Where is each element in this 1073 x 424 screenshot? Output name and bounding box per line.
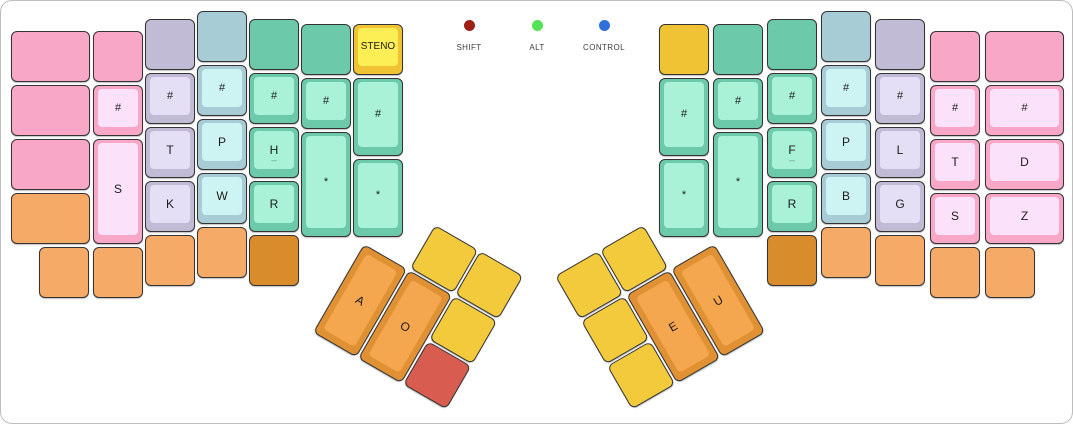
- key-label: #: [681, 109, 687, 120]
- key-l[interactable]: L: [875, 127, 925, 178]
- key-label: #: [952, 103, 958, 114]
- shift-indicator: SHIFT: [434, 18, 504, 52]
- key-label: STENO: [361, 42, 395, 52]
- key-label: S: [114, 183, 122, 195]
- key-label: *: [736, 177, 740, 188]
- steno-keyboard-layout: #S#TK#PW#H_R#*STENO#*#*#*#F_R#PB#LG#TS#D…: [0, 0, 1073, 424]
- key-blank[interactable]: [930, 31, 980, 82]
- key-label: L: [897, 144, 904, 156]
- key-k[interactable]: K: [145, 181, 195, 232]
- key-blank[interactable]: [767, 235, 817, 286]
- key-d[interactable]: D: [985, 139, 1064, 190]
- keycap-face: S: [98, 143, 138, 235]
- key-blank[interactable]: [39, 247, 89, 298]
- keycap-face: #: [718, 82, 758, 120]
- keycap-face: Z: [990, 197, 1059, 235]
- key-p[interactable]: P: [821, 119, 871, 170]
- key-label: #: [789, 91, 795, 102]
- key-label: W: [216, 190, 227, 202]
- key-label: T: [951, 156, 958, 168]
- keycap-face: R: [772, 185, 812, 223]
- keycap-face: #: [254, 77, 294, 115]
- key-hash[interactable]: #: [93, 85, 143, 136]
- key-hash[interactable]: #: [767, 73, 817, 124]
- key-label: R: [270, 198, 279, 210]
- keycap-face: #: [990, 89, 1059, 127]
- key-label: B: [842, 190, 850, 202]
- key-label: P: [218, 136, 226, 148]
- key-label: #: [897, 91, 903, 102]
- keycap-face: W: [202, 177, 242, 215]
- key-label: K: [166, 198, 174, 210]
- key-hash[interactable]: #: [659, 78, 709, 156]
- key-blank[interactable]: [145, 19, 195, 70]
- key-star[interactable]: *: [659, 159, 709, 237]
- key-t[interactable]: T: [145, 127, 195, 178]
- key-sub-legend: _: [271, 152, 277, 162]
- control-indicator-dot: [599, 20, 610, 31]
- key-s[interactable]: S: [93, 139, 143, 244]
- key-blank[interactable]: [875, 19, 925, 70]
- key-hash[interactable]: #: [713, 78, 763, 129]
- key-blank[interactable]: [930, 247, 980, 298]
- key-blank[interactable]: [659, 24, 709, 75]
- keycap-face: #: [772, 77, 812, 115]
- key-label: #: [271, 91, 277, 102]
- keycap-face: F_: [772, 131, 812, 169]
- key-star[interactable]: *: [713, 132, 763, 237]
- key-hash[interactable]: #: [145, 73, 195, 124]
- key-r[interactable]: R: [249, 181, 299, 232]
- keycap-face: #: [664, 82, 704, 147]
- key-b[interactable]: B: [821, 173, 871, 224]
- key-steno[interactable]: STENO: [353, 24, 403, 75]
- key-label: #: [375, 109, 381, 120]
- key-label: A: [354, 293, 367, 307]
- keycap-face: STENO: [358, 28, 398, 66]
- keycap-face: S: [935, 197, 975, 235]
- keycap-face: *: [306, 136, 346, 228]
- key-f[interactable]: F_: [767, 127, 817, 178]
- key-blank[interactable]: [249, 235, 299, 286]
- key-label: *: [324, 177, 328, 188]
- key-blank[interactable]: [767, 19, 817, 70]
- key-label: #: [115, 103, 121, 114]
- keycap-face: H_: [254, 131, 294, 169]
- key-blank[interactable]: [197, 227, 247, 278]
- key-label: T: [166, 144, 173, 156]
- keycap-face: *: [718, 136, 758, 228]
- key-blank[interactable]: [713, 24, 763, 75]
- key-blank[interactable]: [197, 11, 247, 62]
- shift-indicator-dot: [464, 20, 475, 31]
- key-label: #: [167, 91, 173, 102]
- key-r[interactable]: R: [767, 181, 817, 232]
- key-label: P: [842, 136, 850, 148]
- key-hash[interactable]: #: [930, 85, 980, 136]
- keycap-face: T: [935, 143, 975, 181]
- key-star[interactable]: *: [353, 159, 403, 237]
- keycap-face: G: [880, 185, 920, 223]
- key-blank[interactable]: [985, 247, 1035, 298]
- shift-indicator-label: SHIFT: [434, 44, 504, 52]
- keycap-face: L: [880, 131, 920, 169]
- key-blank[interactable]: [11, 31, 90, 82]
- key-sub-legend: _: [789, 152, 795, 162]
- key-hash[interactable]: #: [301, 78, 351, 129]
- control-indicator: CONTROL: [569, 18, 639, 52]
- key-label: G: [895, 198, 904, 210]
- keycap-face: T: [150, 131, 190, 169]
- keycap-face: D: [990, 143, 1059, 181]
- key-blank[interactable]: [145, 235, 195, 286]
- key-blank[interactable]: [93, 31, 143, 82]
- keycap-face: #: [826, 69, 866, 107]
- keycap-face: #: [306, 82, 346, 120]
- key-blank[interactable]: [821, 227, 871, 278]
- key-label: Z: [1021, 210, 1028, 222]
- keycap-face: *: [358, 163, 398, 228]
- key-p[interactable]: P: [197, 119, 247, 170]
- alt-indicator: ALT: [502, 18, 572, 52]
- control-indicator-label: CONTROL: [569, 44, 639, 52]
- key-blank[interactable]: [875, 235, 925, 286]
- key-label: *: [682, 190, 686, 201]
- alt-indicator-dot: [532, 20, 543, 31]
- key-label: #: [323, 96, 329, 107]
- key-hash[interactable]: #: [875, 73, 925, 124]
- key-z[interactable]: Z: [985, 193, 1064, 244]
- key-blank[interactable]: [985, 31, 1064, 82]
- key-label: U: [711, 293, 725, 308]
- key-label: #: [1021, 103, 1027, 114]
- keycap-face: *: [664, 163, 704, 228]
- key-hash[interactable]: #: [353, 78, 403, 156]
- keycap-face: #: [202, 69, 242, 107]
- keycap-face: #: [98, 89, 138, 127]
- key-blank[interactable]: [11, 193, 90, 244]
- key-blank[interactable]: [301, 24, 351, 75]
- key-star[interactable]: *: [301, 132, 351, 237]
- key-h[interactable]: H_: [249, 127, 299, 178]
- keycap-face: #: [880, 77, 920, 115]
- keycap-face: #: [150, 77, 190, 115]
- key-label: E: [666, 319, 679, 333]
- key-label: *: [376, 190, 380, 201]
- key-hash[interactable]: #: [821, 65, 871, 116]
- key-label: O: [398, 319, 412, 334]
- key-blank[interactable]: [821, 11, 871, 62]
- key-label: R: [788, 198, 797, 210]
- key-blank[interactable]: [11, 139, 90, 190]
- key-t[interactable]: T: [930, 139, 980, 190]
- key-blank[interactable]: [93, 247, 143, 298]
- keycap-face: #: [935, 89, 975, 127]
- key-label: #: [219, 83, 225, 94]
- key-w[interactable]: W: [197, 173, 247, 224]
- key-hash[interactable]: #: [985, 85, 1064, 136]
- key-hash[interactable]: #: [197, 65, 247, 116]
- key-label: S: [951, 210, 959, 222]
- alt-indicator-label: ALT: [502, 44, 572, 52]
- key-g[interactable]: G: [875, 181, 925, 232]
- keycap-face: K: [150, 185, 190, 223]
- keycap-face: P: [202, 123, 242, 161]
- key-blank[interactable]: [11, 85, 90, 136]
- key-label: #: [735, 96, 741, 107]
- key-hash[interactable]: #: [249, 73, 299, 124]
- key-blank[interactable]: [249, 19, 299, 70]
- key-s[interactable]: S: [930, 193, 980, 244]
- keycap-face: B: [826, 177, 866, 215]
- keycap-face: P: [826, 123, 866, 161]
- key-label: #: [843, 83, 849, 94]
- keycap-face: R: [254, 185, 294, 223]
- keycap-face: #: [358, 82, 398, 147]
- key-label: D: [1020, 156, 1029, 168]
